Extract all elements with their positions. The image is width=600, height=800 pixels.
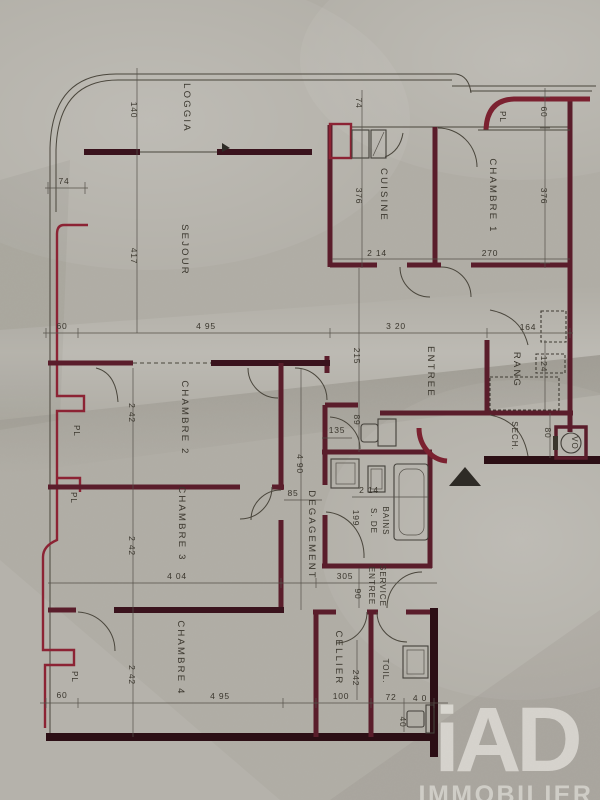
floor-plan-drawing: 140 74 74 376 60 376 417 2 14 270 60 4 9… xyxy=(0,0,600,800)
dim-entree-height: 215 xyxy=(352,348,362,365)
dim-service-height: 90 xyxy=(353,588,363,599)
room-label-degagement: DEGAGEMENT xyxy=(306,490,317,580)
room-label-bains-line1: S. DE xyxy=(369,508,378,534)
dim-wc-width: 89 xyxy=(352,414,362,425)
closet-label-pl-ch2: PL xyxy=(72,425,81,437)
room-label-cellier: CELLIER xyxy=(333,630,344,685)
room-label-service-line2: SERVICE xyxy=(378,565,387,607)
room-label-chambre2: CHAMBRE 2 xyxy=(179,380,190,455)
dim-pl-top: 60 xyxy=(539,106,549,117)
room-label-rang: RANG xyxy=(511,352,522,388)
room-label-entree: ENTREE xyxy=(425,346,436,398)
dim-bains-width: 2 14 xyxy=(359,485,379,495)
dim-sejour-width: 4 95 xyxy=(196,321,216,331)
dim-bains-height: 199 xyxy=(351,510,361,527)
dim-service-width: 305 xyxy=(337,571,354,581)
dim-sech-width: 80 xyxy=(543,427,553,438)
room-label-chambre3: CHAMBRE 3 xyxy=(176,486,187,561)
dim-chambre1-height: 376 xyxy=(539,188,549,205)
dim-cuisine-width: 2 14 xyxy=(367,248,387,258)
label-vo: VO xyxy=(570,436,579,450)
dim-wc-door: 135 xyxy=(329,425,346,435)
dim-cuisine-top: 74 xyxy=(354,97,364,108)
dim-cellier-width: 100 xyxy=(333,691,350,701)
dim-chambre1-width: 270 xyxy=(482,248,499,258)
dim-sejour-left: 60 xyxy=(56,321,67,331)
room-label-toil: TOIL. xyxy=(381,659,390,684)
room-label-chambre4: CHAMBRE 4 xyxy=(175,620,186,695)
closet-label-pl-ch4: PL xyxy=(70,671,79,683)
closet-label-pl-top: PL xyxy=(498,111,507,123)
dim-chambre4-width: 4 95 xyxy=(210,691,230,701)
dim-parapet-left: 74 xyxy=(58,176,69,186)
dim-toil-depth: 4 0 xyxy=(413,693,427,703)
dim-cellier-height: 242 xyxy=(351,670,361,687)
dim-rang-width: 164 xyxy=(520,322,537,332)
room-label-cuisine: CUISINE xyxy=(378,168,389,222)
dim-cuisine-height: 376 xyxy=(354,188,364,205)
dim-chambre3-width: 4 04 xyxy=(167,571,187,581)
room-label-loggia: LOGGIA xyxy=(181,83,192,133)
dim-toil-width: 72 xyxy=(385,692,396,702)
dim-rang-shelf: 124 xyxy=(539,356,549,373)
dim-degagement-height: 4 90 xyxy=(295,454,305,474)
paper-texture xyxy=(0,0,600,800)
room-label-service-line1: ENTREE xyxy=(367,567,376,605)
dim-entree-width: 3 20 xyxy=(386,321,406,331)
dim-chambre4-left: 60 xyxy=(56,690,67,700)
dim-chambre4-height: 2 42 xyxy=(127,665,137,685)
dim-sejour-height: 417 xyxy=(129,248,139,265)
dim-loggia-depth: 140 xyxy=(129,102,139,119)
room-label-chambre1: CHAMBRE 1 xyxy=(487,158,498,233)
dim-chambre3-height: 2 42 xyxy=(127,536,137,556)
dim-degagement-width: 85 xyxy=(287,488,298,498)
room-label-sech: SECH. xyxy=(510,421,519,450)
dim-chambre2-height: 2 42 xyxy=(127,403,137,423)
floor-plan-photo: 140 74 74 376 60 376 417 2 14 270 60 4 9… xyxy=(0,0,600,800)
closet-label-pl-ch3: PL xyxy=(69,492,78,504)
room-label-sejour: SEJOUR xyxy=(179,224,190,276)
room-label-bains-line2: BAINS xyxy=(381,506,390,535)
dim-toil-inner: 40 xyxy=(398,716,408,727)
